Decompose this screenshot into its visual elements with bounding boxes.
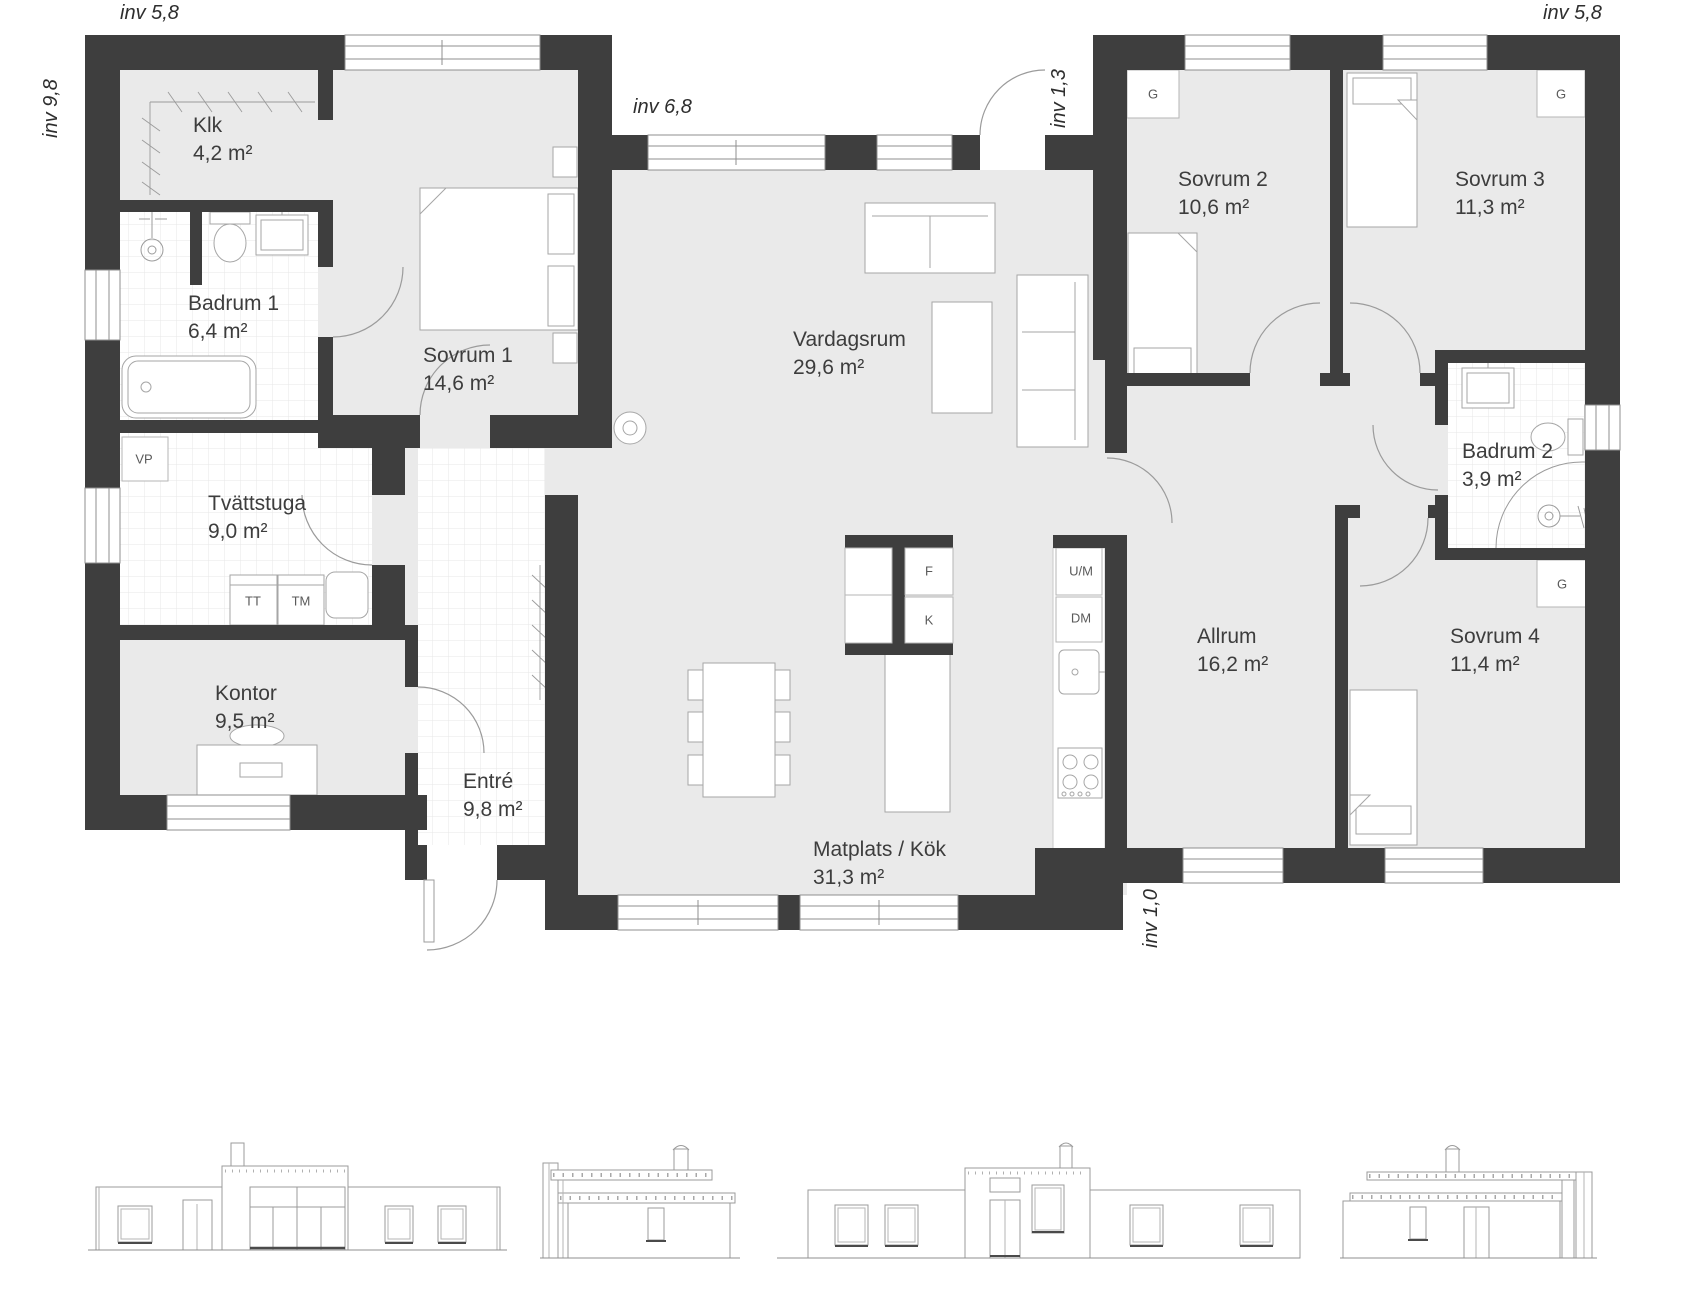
dim-top-left: inv 5,8 [120,2,179,25]
label-k: K [925,613,934,628]
elevations [88,1143,1597,1258]
label-vp: VP [135,452,152,467]
label-dm: DM [1071,611,1091,626]
coffee-table [932,302,992,413]
bed-single-3 [1347,73,1417,227]
room-label-badrum1: Badrum 1 6,4 m² [188,290,279,346]
room-label-sovrum1: Sovrum 1 14,6 m² [423,342,513,398]
room-label-badrum2: Badrum 2 3,9 m² [1462,438,1553,494]
kitchen-counter-appliances [1056,548,1105,798]
dim-left: inv 9,8 [40,79,63,138]
label-f: F [925,564,933,579]
label-um: U/M [1069,564,1093,579]
sofa-large [865,203,995,273]
kitchen-sink-icon [1059,650,1099,694]
window [345,35,540,70]
sofa-small [1017,275,1088,447]
stove-icon [1058,748,1102,798]
room-label-sovrum4: Sovrum 4 11,4 m² [1450,623,1540,679]
kitchen-island [885,653,950,812]
dining-table [688,663,790,797]
room-label-klk: Klk 4,2 m² [193,112,253,168]
room-label-tvattstuga: Tvättstuga 9,0 m² [208,490,306,546]
bed-single-4 [1350,690,1417,845]
floor-plan-drawing [0,0,1700,1293]
label-tt: TT [245,594,261,609]
door-arc-entre [427,880,497,950]
label-g-sovrum3: G [1556,87,1566,102]
room-label-allrum: Allrum 16,2 m² [1197,623,1268,679]
dim-top-right: inv 5,8 [1543,2,1602,25]
room-label-entre: Entré 9,8 m² [463,768,523,824]
room-label-kontor: Kontor 9,5 m² [215,680,277,736]
label-tm: TM [292,594,311,609]
room-label-sovrum2: Sovrum 2 10,6 m² [1178,166,1268,222]
room-label-vardagsrum: Vardagsrum 29,6 m² [793,326,906,382]
fridge-freezer-unit [845,535,953,655]
elevation-side-left [540,1146,740,1259]
room-label-matplats-kok: Matplats / Kök 31,3 m² [813,836,946,892]
floor-plan-page: Klk 4,2 m² Badrum 1 6,4 m² Sovrum 1 14,6… [0,0,1700,1293]
elevation-side-right [1340,1146,1597,1259]
elevation-front [88,1143,507,1250]
label-g-sovrum2: G [1148,87,1158,102]
bed-single-2 [1128,233,1197,385]
dim-bottom: inv 1,0 [1140,889,1163,948]
bathtub-icon [122,356,256,418]
dim-top-center: inv 6,8 [633,96,692,119]
room-label-sovrum3: Sovrum 3 11,3 m² [1455,166,1545,222]
sink-icon-2 [1462,362,1514,408]
laundry-sink-icon [326,572,368,618]
elevation-rear [777,1143,1300,1258]
label-g-sovrum4: G [1557,577,1567,592]
sink-icon [256,210,308,255]
dim-entry: inv 1,3 [1048,69,1071,128]
door-arc-terrace [980,70,1045,135]
